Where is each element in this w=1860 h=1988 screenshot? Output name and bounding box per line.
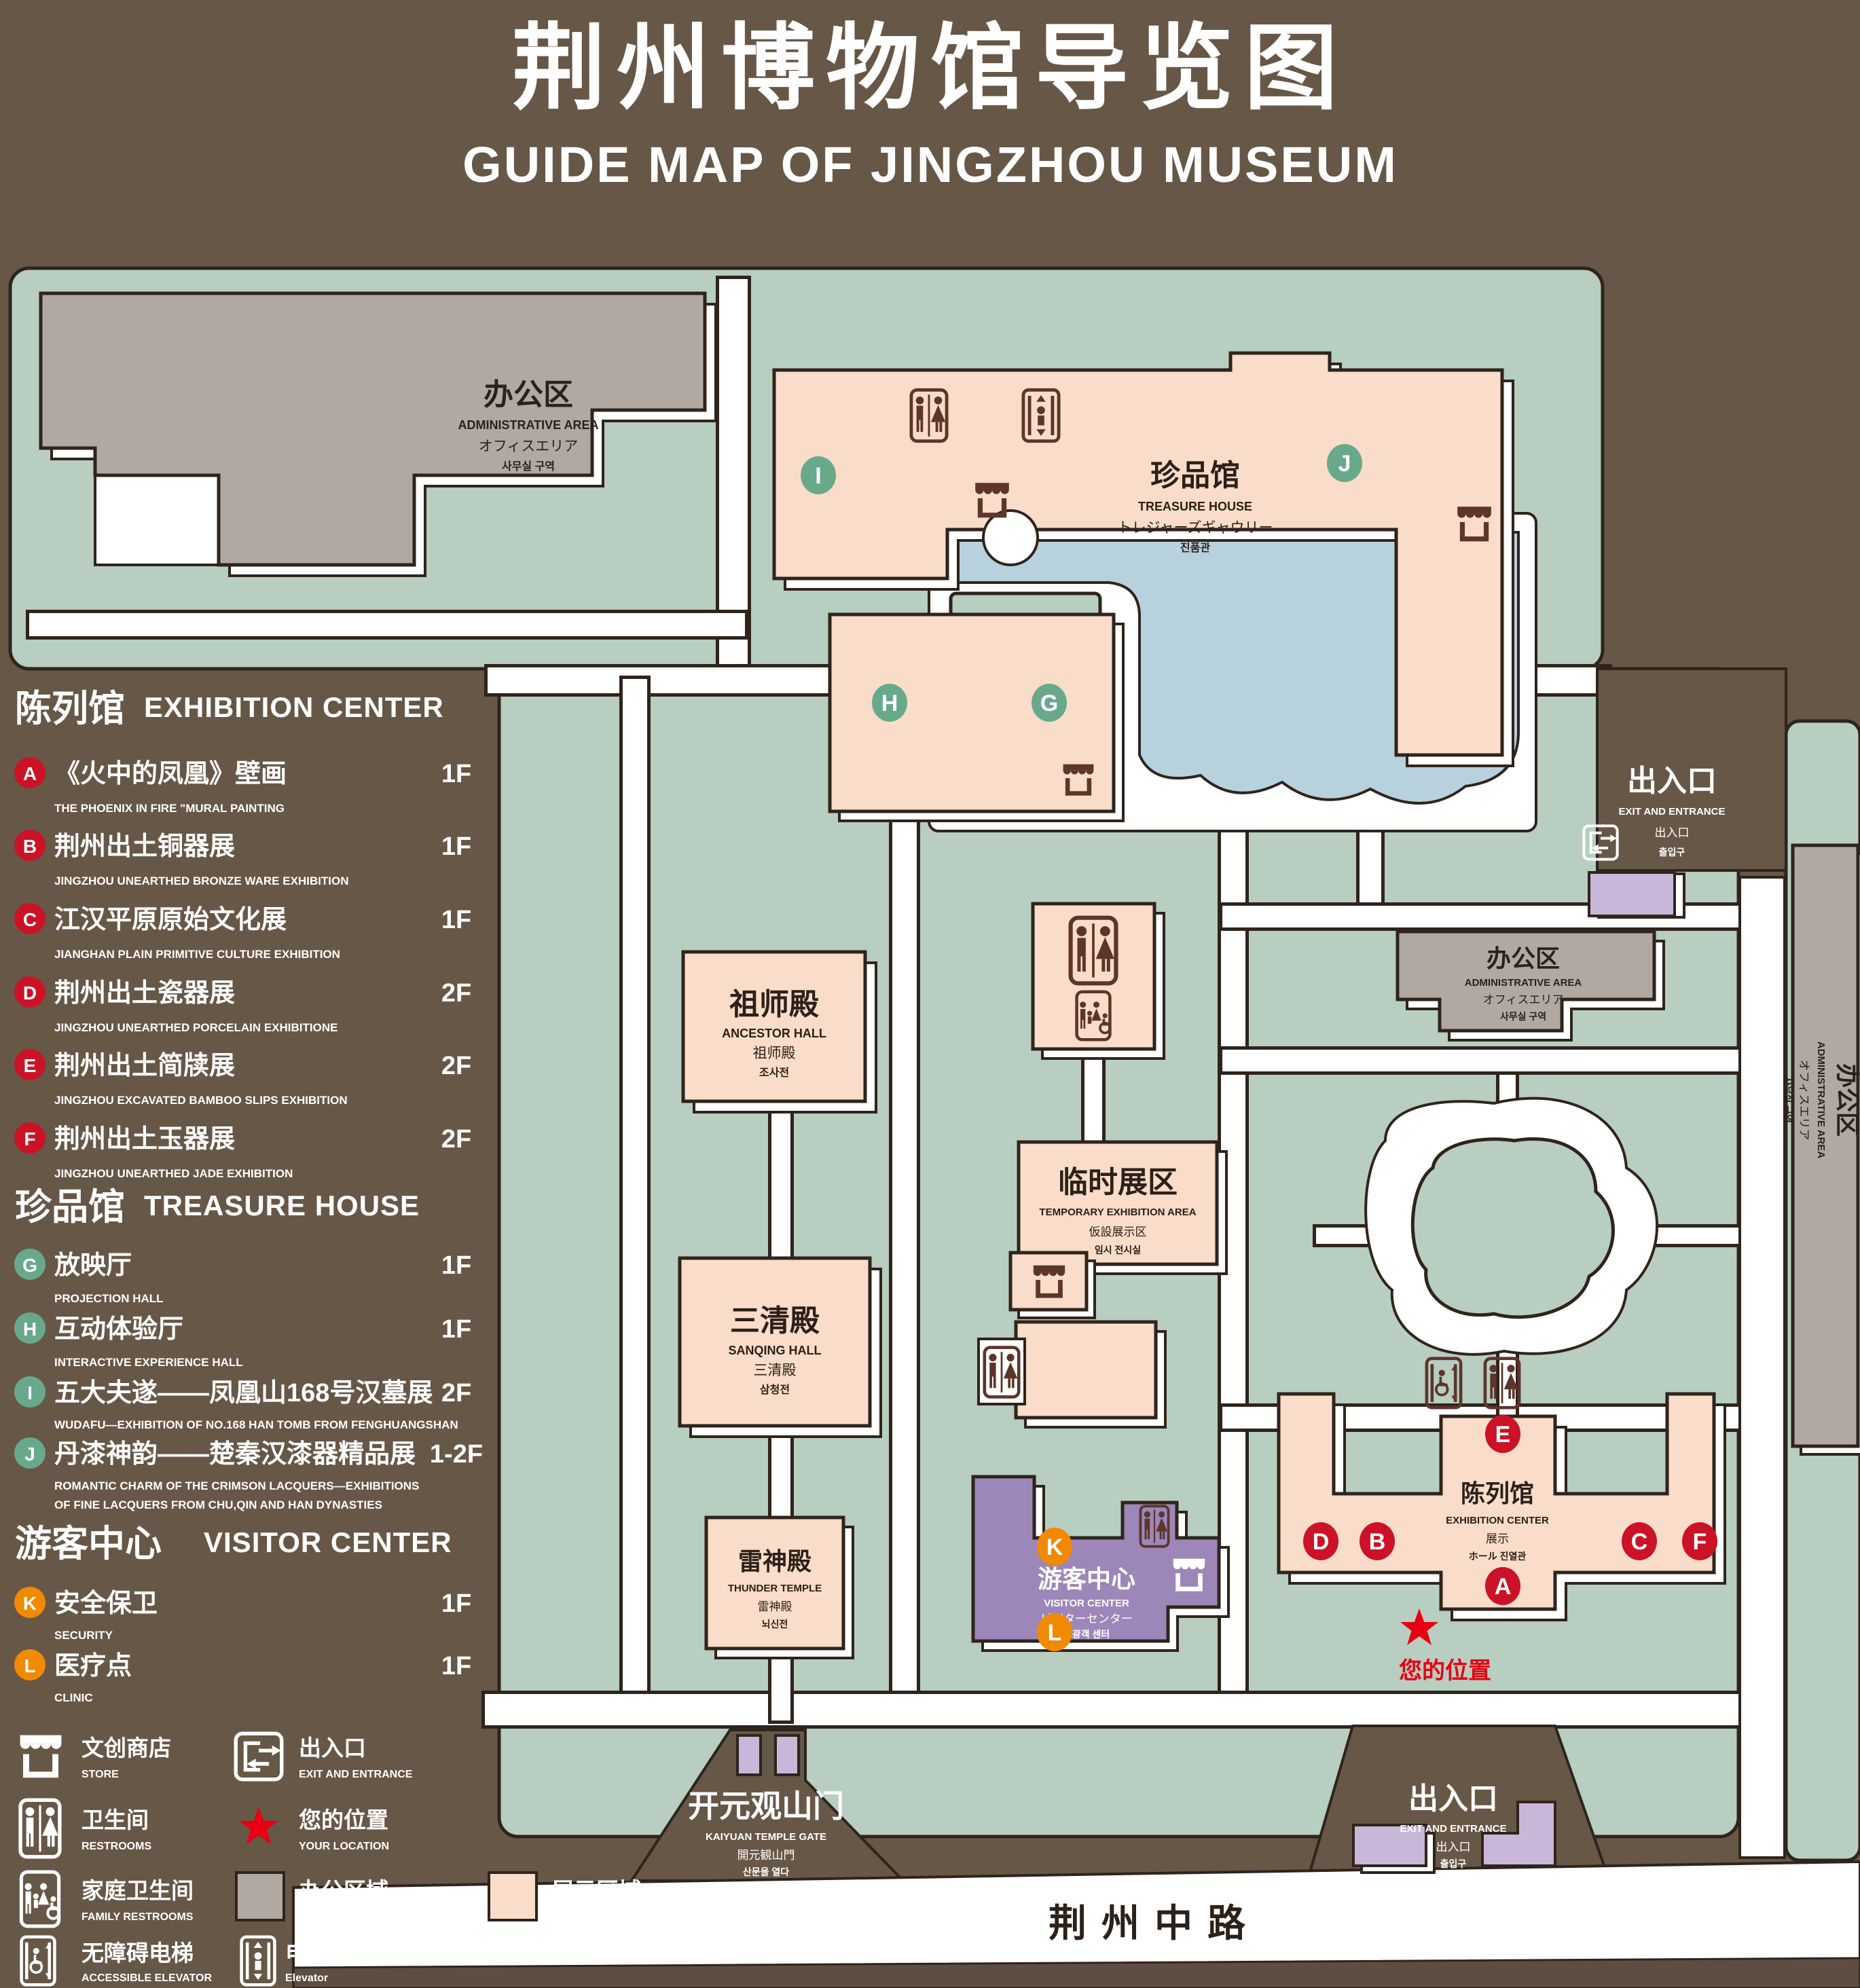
svg-text:K: K xyxy=(1046,1534,1063,1560)
svg-text:1-2F: 1-2F xyxy=(430,1440,483,1469)
exit-right-label-zh2: 出入口 xyxy=(1655,826,1690,839)
exit-right-label-ko: 출입구 xyxy=(1659,847,1685,858)
marker-f: F xyxy=(1682,1522,1717,1560)
admin-strip-label-zh: 办公区 xyxy=(1834,1063,1860,1137)
svg-text:游客中心: 游客中心 xyxy=(15,1524,162,1564)
legend-symbol-accessible-elevator: 无障碍电梯 ACCESSIBLE ELEVATOR xyxy=(22,1937,213,1985)
marker-h: H xyxy=(872,684,907,722)
svg-text:D: D xyxy=(1313,1529,1330,1555)
treasure-label-ja: トレジャーズギャウリー xyxy=(1118,520,1273,536)
svg-text:荆州出土铜器展: 荆州出土铜器展 xyxy=(54,832,235,861)
kaiyuan-label-zh: 开元观山门 xyxy=(688,1788,844,1824)
svg-text:五大夫遂——凤凰山168号汉墓展: 五大夫遂——凤凰山168号汉墓展 xyxy=(54,1379,433,1407)
svg-text:荆州出土玉器展: 荆州出土玉器展 xyxy=(54,1125,235,1154)
svg-text:F: F xyxy=(1693,1529,1707,1555)
svg-text:C: C xyxy=(1631,1529,1648,1555)
exit-right-label-zh: 出入口 xyxy=(1627,765,1717,798)
svg-text:E: E xyxy=(24,1055,37,1076)
treasure-label-en: TREASURE HOUSE xyxy=(1138,500,1252,513)
sanqing-label-en: SANQING HALL xyxy=(729,1344,822,1357)
guide-map-page: 荆州博物馆导览图 GUIDE MAP OF JINGZHOU MUSEUM xyxy=(0,0,1860,1988)
admin-right-label-ja: オフィスエリア xyxy=(1483,993,1564,1006)
svg-text:Elevator: Elevator xyxy=(285,1972,328,1984)
exit-bottom-label-ko: 출입구 xyxy=(1440,1858,1467,1869)
marker-k: K xyxy=(1037,1528,1072,1566)
svg-text:RESTROOMS: RESTROOMS xyxy=(81,1841,151,1852)
svg-text:荆州出土简牍展: 荆州出土简牍展 xyxy=(54,1052,235,1080)
legend-heading-zh: 陈列馆 xyxy=(15,688,125,729)
svg-text:INTERACTIVE EXPERIENCE HALL: INTERACTIVE EXPERIENCE HALL xyxy=(54,1356,243,1369)
garden-island xyxy=(1412,1139,1613,1317)
marker-e: E xyxy=(1485,1415,1520,1453)
svg-text:JINGZHOU UNEARTHED JADE EXHIBI: JINGZHOU UNEARTHED JADE EXHIBITION xyxy=(54,1167,293,1180)
svg-text:G: G xyxy=(22,1255,37,1276)
svg-text:医疗点: 医疗点 xyxy=(54,1652,132,1680)
admin-strip-label-ko: 사무실 구역 xyxy=(1783,1077,1793,1123)
svg-text:A: A xyxy=(23,763,37,784)
admin-right-label-ko: 사무실 구역 xyxy=(1500,1011,1546,1022)
legend-symbol-display-area: 展示区域 DISPLAY AREA xyxy=(489,1873,641,1923)
svg-text:J: J xyxy=(24,1443,35,1465)
ancestor-label-zh: 祖师殿 xyxy=(729,988,819,1021)
svg-text:OFFICE AREA: OFFICE AREA xyxy=(299,1911,372,1923)
temporary-label-zh: 临时展区 xyxy=(1058,1166,1178,1199)
display-area-swatch xyxy=(489,1873,536,1920)
svg-text:VISITOR CENTER: VISITOR CENTER xyxy=(204,1526,452,1558)
thunder-label-en: THUNDER TEMPLE xyxy=(728,1583,822,1594)
svg-text:出入口: 出入口 xyxy=(299,1735,366,1761)
exit-bottom-label-zh2: 出入口 xyxy=(1436,1841,1471,1854)
svg-text:B: B xyxy=(1369,1529,1386,1555)
sanqing-label-zh2: 三清殿 xyxy=(754,1363,797,1378)
svg-text:K: K xyxy=(23,1593,37,1614)
temporary-label-ko: 임시 전시실 xyxy=(1095,1245,1141,1255)
marker-g: G xyxy=(1032,684,1067,722)
svg-text:2F: 2F xyxy=(441,1052,471,1080)
your-location-label: 您的位置 xyxy=(1399,1658,1491,1684)
admin-right-label-zh: 办公区 xyxy=(1487,944,1560,972)
treasure-label-zh: 珍品馆 xyxy=(1150,459,1240,492)
building-thunder-temple: 雷神殿 THUNDER TEMPLE 雷神殿 뇌신전 xyxy=(706,1517,853,1658)
svg-text:无障碍电梯: 无障碍电梯 xyxy=(81,1940,194,1966)
admin-strip-label-en: ADMINISTRATIVE AREA xyxy=(1815,1042,1827,1159)
svg-text:展示区域: 展示区域 xyxy=(551,1878,641,1903)
marker-j: J xyxy=(1327,444,1362,482)
svg-text:1F: 1F xyxy=(441,1315,471,1344)
svg-text:文创商店: 文创商店 xyxy=(81,1735,171,1761)
museum-guide-map: 荆州博物馆导览图 GUIDE MAP OF JINGZHOU MUSEUM xyxy=(0,0,1860,1988)
svg-text:JINGZHOU EXCAVATED BAMBOO SLIP: JINGZHOU EXCAVATED BAMBOO SLIPS EXHIBITI… xyxy=(54,1094,348,1107)
building-central-restrooms xyxy=(1033,904,1164,1059)
exhibition-label-zh: 陈列馆 xyxy=(1461,1479,1534,1507)
thunder-label-zh: 雷神殿 xyxy=(738,1547,812,1575)
svg-text:SECURITY: SECURITY xyxy=(54,1629,113,1642)
kaiyuan-gate-post xyxy=(737,1735,761,1775)
temporary-label-en: TEMPORARY EXHIBITION AREA xyxy=(1039,1207,1196,1218)
svg-text:PROJECTION HALL: PROJECTION HALL xyxy=(54,1292,164,1305)
ancestor-label-en: ANCESTOR HALL xyxy=(722,1027,826,1040)
admin-right-label-en: ADMINISTRATIVE AREA xyxy=(1465,977,1582,989)
svg-text:STORE: STORE xyxy=(81,1769,119,1780)
exit-bottom-label-en: EXIT AND ENTRANCE xyxy=(1400,1823,1507,1835)
svg-text:F: F xyxy=(24,1128,35,1149)
legend-heading-en: EXHIBITION CENTER xyxy=(144,691,444,723)
svg-text:丹漆神韵——楚秦汉漆器精品展: 丹漆神韵——楚秦汉漆器精品展 xyxy=(54,1440,416,1469)
svg-text:卫生间: 卫生间 xyxy=(81,1807,149,1833)
svg-text:D: D xyxy=(23,982,37,1004)
sanqing-label-zh: 三清殿 xyxy=(730,1304,820,1338)
svg-text:江汉平原原始文化展: 江汉平原原始文化展 xyxy=(54,906,287,934)
svg-text:JIANGHAN PLAIN PRIMITIVE CULTU: JIANGHAN PLAIN PRIMITIVE CULTURE EXHIBIT… xyxy=(54,948,340,961)
svg-text:放映厅: 放映厅 xyxy=(54,1251,132,1280)
marker-d: D xyxy=(1303,1522,1338,1560)
admin-tl-label-ko: 사무실 구역 xyxy=(502,460,555,473)
building-sanqing-hall: 三清殿 SANQING HALL 三清殿 삼청전 xyxy=(680,1258,881,1437)
svg-text:JINGZHOU UNEARTHED BRONZE WARE: JINGZHOU UNEARTHED BRONZE WARE EXHIBITIO… xyxy=(54,875,349,887)
legend-symbol-restrooms: 卫生间 RESTROOMS xyxy=(20,1800,151,1857)
marker-a: A xyxy=(1485,1567,1520,1605)
thunder-label-ko: 뇌신전 xyxy=(762,1619,788,1630)
road-name: 荆州中路 xyxy=(1048,1902,1260,1945)
svg-text:C: C xyxy=(23,909,37,930)
kaiyuan-gate-post xyxy=(776,1735,799,1775)
admin-strip-label-ja: オフィスエリア xyxy=(1798,1060,1810,1141)
svg-text:WUDAFU—EXHIBITION OF NO.168 HA: WUDAFU—EXHIBITION OF NO.168 HAN TOMB FRO… xyxy=(54,1418,458,1431)
svg-text:ROMANTIC CHARM OF THE CRIMSON: ROMANTIC CHARM OF THE CRIMSON LACQUERS—E… xyxy=(54,1479,419,1492)
visitor-label-en: VISITOR CENTER xyxy=(1044,1598,1129,1609)
svg-text:TREASURE HOUSE: TREASURE HOUSE xyxy=(144,1190,420,1221)
svg-text:1F: 1F xyxy=(441,760,471,788)
page-title: 荆州博物馆导览图 xyxy=(512,16,1349,121)
right-walkway xyxy=(1740,877,1785,1858)
svg-text:I: I xyxy=(815,463,821,489)
ancestor-label-zh2: 祖师殿 xyxy=(753,1046,796,1061)
building-ancestor-hall: 祖师殿 ANCESTOR HALL 祖师殿 조사전 xyxy=(683,952,876,1112)
svg-text:电梯: 电梯 xyxy=(285,1940,330,1966)
svg-text:H: H xyxy=(23,1319,37,1340)
kaiyuan-label-ja: 開元観山門 xyxy=(737,1849,795,1862)
legend-heading-zh: 珍品馆 xyxy=(15,1187,125,1228)
svg-text:THE PHOENIX IN FIRE "MURAL PAI: THE PHOENIX IN FIRE "MURAL PAINTING xyxy=(54,802,285,815)
svg-text:CLINIC: CLINIC xyxy=(54,1691,93,1704)
svg-text:FAMILY RESTROOMS: FAMILY RESTROOMS xyxy=(81,1911,194,1923)
temporary-label-ja: 仮設展示区 xyxy=(1089,1226,1147,1238)
pond-bridge xyxy=(983,511,1038,565)
legend-symbol-office-area: 办公区域 OFFICE AREA xyxy=(236,1873,388,1923)
svg-text:1F: 1F xyxy=(441,1589,471,1618)
exit-right-structure xyxy=(1589,872,1675,916)
svg-text:互动体验厅: 互动体验厅 xyxy=(54,1315,183,1344)
svg-text:J: J xyxy=(1338,451,1351,477)
svg-text:您的位置: 您的位置 xyxy=(299,1807,388,1833)
office-area-swatch xyxy=(236,1873,284,1920)
elevator-icon xyxy=(1023,390,1059,441)
marker-c: C xyxy=(1622,1522,1657,1560)
admin-tl-label-ja: オフィスエリア xyxy=(479,439,579,454)
legend-item-i: I 五大夫遂——凤凰山168号汉墓展 WUDAFU—EXHIBITION OF … xyxy=(14,1376,471,1431)
svg-text:家庭卫生间: 家庭卫生间 xyxy=(81,1878,194,1903)
svg-text:办公区域: 办公区域 xyxy=(299,1878,388,1903)
admin-tl-label-zh: 办公区 xyxy=(484,378,573,411)
svg-text:JINGZHOU UNEARTHED PORCELAIN E: JINGZHOU UNEARTHED PORCELAIN EXHIBITIONE xyxy=(54,1021,338,1034)
svg-text:E: E xyxy=(1495,1422,1511,1448)
exhibition-label-zh2: 展示 xyxy=(1486,1532,1509,1545)
ancestor-label-ko: 조사전 xyxy=(759,1067,789,1079)
building-store-tab xyxy=(1010,1253,1095,1318)
svg-text:B: B xyxy=(23,836,37,857)
svg-text:A: A xyxy=(1495,1574,1512,1600)
svg-text:L: L xyxy=(1048,1620,1062,1646)
kaiyuan-label-en: KAIYUAN TEMPLE GATE xyxy=(706,1831,826,1843)
svg-text:1F: 1F xyxy=(441,1652,471,1680)
svg-text:EXIT AND ENTRANCE: EXIT AND ENTRANCE xyxy=(299,1769,413,1780)
treasure-label-ko: 진품관 xyxy=(1180,542,1210,554)
svg-text:L: L xyxy=(24,1655,35,1676)
kaiyuan-label-ko: 산문을 열다 xyxy=(743,1866,789,1877)
svg-text:OF FINE LACQUERS FROM CHU,QIN: OF FINE LACQUERS FROM CHU,QIN AND HAN DY… xyxy=(54,1498,382,1511)
svg-text:ACCESSIBLE ELEVATOR: ACCESSIBLE ELEVATOR xyxy=(81,1972,212,1984)
marker-l: L xyxy=(1037,1613,1072,1651)
sanqing-label-ko: 삼청전 xyxy=(760,1383,790,1396)
visitor-label-zh: 游客中心 xyxy=(1038,1565,1135,1593)
marker-b: B xyxy=(1360,1522,1395,1560)
svg-text:I: I xyxy=(27,1382,33,1403)
svg-text:1F: 1F xyxy=(441,832,471,861)
svg-text:2F: 2F xyxy=(441,1379,471,1407)
svg-text:1F: 1F xyxy=(441,1251,471,1280)
exit-right-label-en: EXIT AND ENTRANCE xyxy=(1619,806,1726,817)
svg-text:2F: 2F xyxy=(441,1125,471,1154)
page-subtitle: GUIDE MAP OF JINGZHOU MUSEUM xyxy=(462,136,1398,193)
svg-text:《火中的凤凰》壁画: 《火中的凤凰》壁画 xyxy=(54,760,287,788)
svg-text:G: G xyxy=(1040,691,1058,716)
exhibition-label-mixed: ホール 진열관 xyxy=(1469,1551,1527,1562)
svg-text:H: H xyxy=(881,691,898,716)
thunder-label-zh2: 雷神殿 xyxy=(758,1600,792,1613)
svg-text:DISPLAY AREA: DISPLAY AREA xyxy=(551,1911,631,1923)
exit-bottom-label-zh: 出入口 xyxy=(1408,1782,1498,1816)
svg-text:1F: 1F xyxy=(441,906,471,934)
building-admin-strip: 办公区 ADMINISTRATIVE AREA オフィスエリア 사무실 구역 xyxy=(1783,845,1860,1454)
admin-tl-label-en: ADMINISTRATIVE AREA xyxy=(458,418,599,432)
treasure-lower-wing xyxy=(830,614,1114,811)
svg-text:安全保卫: 安全保卫 xyxy=(54,1589,158,1618)
svg-text:2F: 2F xyxy=(441,979,471,1008)
svg-text:荆州出土瓷器展: 荆州出土瓷器展 xyxy=(54,979,235,1008)
exhibition-label-en: EXHIBITION CENTER xyxy=(1446,1515,1549,1526)
garden xyxy=(1366,1099,1657,1355)
elevator-icon xyxy=(242,1937,275,1985)
svg-text:YOUR LOCATION: YOUR LOCATION xyxy=(299,1841,389,1852)
marker-i: I xyxy=(801,456,836,494)
